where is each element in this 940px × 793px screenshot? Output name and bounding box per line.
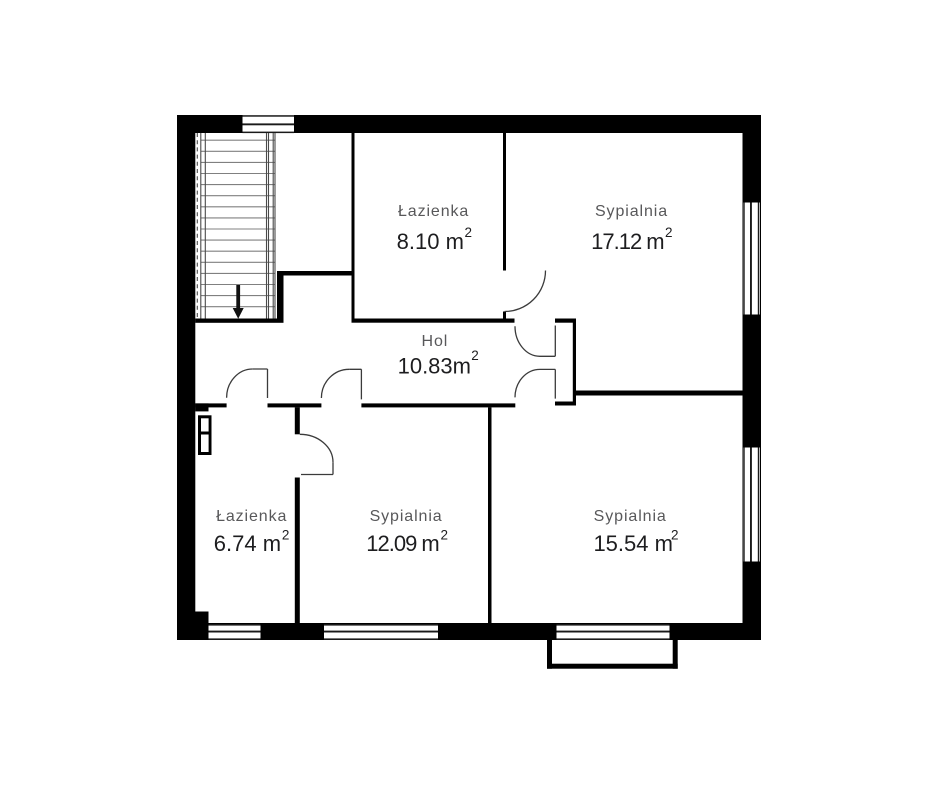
- svg-text:Sypialnia: Sypialnia: [595, 203, 668, 220]
- svg-text:2: 2: [665, 225, 673, 240]
- svg-text:8.10 m: 8.10 m: [397, 229, 464, 254]
- svg-text:10.83m: 10.83m: [398, 354, 471, 379]
- svg-text:2: 2: [282, 528, 290, 543]
- svg-text:2: 2: [471, 348, 479, 363]
- svg-text:2: 2: [441, 528, 449, 543]
- svg-text:Sypialnia: Sypialnia: [370, 508, 443, 525]
- svg-text:12.09 m: 12.09 m: [366, 531, 439, 556]
- svg-text:6.74 m: 6.74 m: [214, 531, 281, 556]
- svg-text:2: 2: [465, 225, 473, 240]
- svg-text:Hol: Hol: [422, 333, 449, 350]
- svg-text:17.12 m: 17.12 m: [591, 229, 664, 254]
- svg-text:15.54 m: 15.54 m: [593, 531, 673, 556]
- svg-text:2: 2: [671, 528, 679, 543]
- svg-text:Łazienka: Łazienka: [398, 203, 469, 220]
- svg-text:Sypialnia: Sypialnia: [594, 508, 667, 525]
- svg-text:Łazienka: Łazienka: [216, 508, 287, 525]
